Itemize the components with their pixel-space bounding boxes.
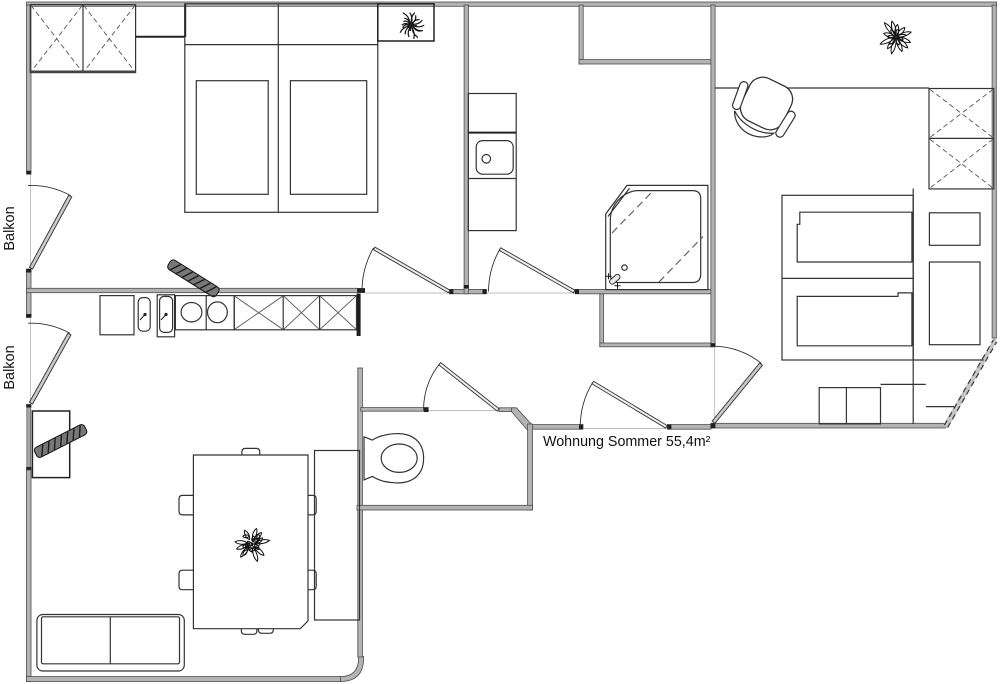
svg-text:Balkon: Balkon — [2, 206, 18, 250]
svg-text:Balkon: Balkon — [2, 345, 18, 389]
svg-text:Wohnung Sommer 55,4m²: Wohnung Sommer 55,4m² — [543, 434, 711, 450]
